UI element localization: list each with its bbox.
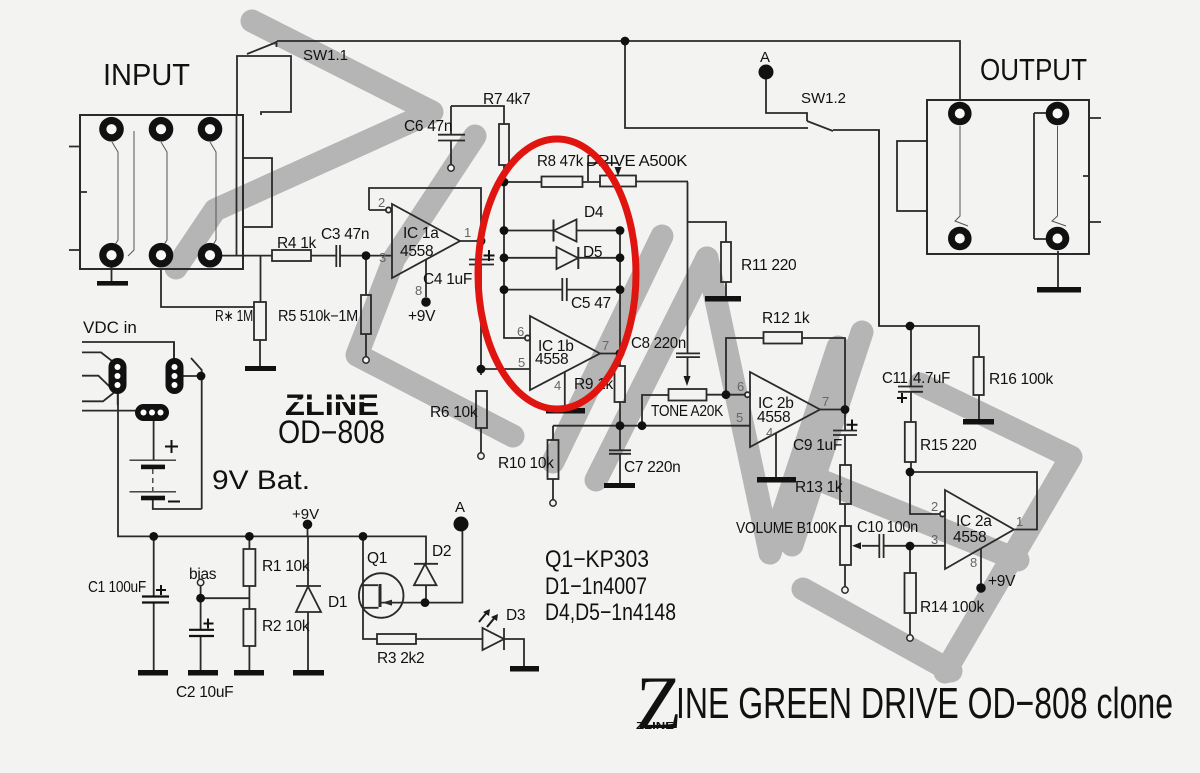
svg-text:R16 100k: R16 100k [989, 371, 1054, 388]
svg-text:R8 47k: R8 47k [537, 153, 584, 170]
svg-text:R13 1k: R13 1k [795, 479, 843, 496]
svg-text:INPUT: INPUT [103, 57, 190, 92]
svg-text:R12 1k: R12 1k [762, 310, 810, 327]
svg-text:OUTPUT: OUTPUT [980, 52, 1087, 87]
svg-text:2: 2 [378, 195, 385, 210]
svg-text:ZLINE: ZLINE [636, 721, 674, 732]
svg-text:R∗ 1M: R∗ 1M [215, 308, 253, 325]
svg-text:D1−1n4007: D1−1n4007 [545, 573, 647, 600]
svg-text:4: 4 [554, 378, 561, 393]
svg-text:6: 6 [737, 379, 744, 394]
svg-text:OD−808: OD−808 [278, 414, 385, 450]
svg-text:R4 1k: R4 1k [277, 235, 317, 252]
svg-text:4558: 4558 [757, 409, 790, 426]
svg-text:C3 47n: C3 47n [321, 226, 369, 243]
svg-text:9V Bat.: 9V Bat. [212, 465, 310, 495]
svg-text:+9V: +9V [408, 308, 436, 325]
svg-text:C9 1uF: C9 1uF [793, 437, 842, 454]
svg-text:8: 8 [415, 283, 422, 298]
svg-text:IC 2a: IC 2a [956, 513, 992, 530]
svg-text:R10 10k: R10 10k [498, 455, 554, 472]
svg-text:A: A [760, 49, 770, 66]
svg-text:7: 7 [602, 338, 609, 353]
svg-text:R3 2k2: R3 2k2 [377, 650, 424, 667]
svg-text:C1 100uF: C1 100uF [88, 579, 146, 596]
svg-text:D4,D5−1n4148: D4,D5−1n4148 [545, 599, 676, 626]
svg-text:C7 220n: C7 220n [624, 459, 681, 476]
svg-text:D2: D2 [432, 543, 451, 560]
svg-text:C4 1uF: C4 1uF [423, 271, 472, 288]
svg-text:7: 7 [822, 394, 829, 409]
svg-text:1: 1 [464, 225, 471, 240]
svg-text:SW1.2: SW1.2 [801, 90, 846, 107]
svg-text:3: 3 [379, 250, 386, 265]
svg-text:4558: 4558 [953, 529, 986, 546]
svg-text:D1: D1 [328, 594, 347, 611]
svg-text:5: 5 [736, 410, 743, 425]
svg-text:4558: 4558 [535, 351, 568, 368]
svg-text:R7 4k7: R7 4k7 [483, 91, 530, 108]
svg-text:Q1: Q1 [367, 550, 387, 567]
svg-text:4558: 4558 [400, 243, 433, 260]
svg-text:R15 220: R15 220 [920, 437, 977, 454]
svg-text:5: 5 [518, 355, 525, 370]
svg-text:+9V: +9V [292, 506, 319, 523]
svg-text:1: 1 [1016, 514, 1023, 529]
svg-text:R14 100k: R14 100k [920, 599, 985, 616]
svg-text:R1 10k: R1 10k [262, 558, 310, 575]
svg-text:C5 47: C5 47 [571, 295, 611, 312]
svg-text:R5 510k−1M: R5 510k−1M [278, 308, 358, 325]
svg-text:6: 6 [517, 324, 524, 339]
svg-text:D4: D4 [584, 204, 604, 221]
svg-text:Z: Z [636, 662, 682, 745]
svg-text:VOLUME B100K: VOLUME B100K [736, 520, 838, 537]
svg-text:2: 2 [931, 499, 938, 514]
svg-text:TONE A20K: TONE A20K [651, 403, 724, 420]
svg-text:8: 8 [970, 555, 977, 570]
svg-text:SW1.1: SW1.1 [303, 47, 348, 64]
svg-text:D5: D5 [583, 244, 602, 261]
svg-text:C8 220n: C8 220n [631, 335, 686, 352]
svg-text:4: 4 [766, 425, 773, 440]
svg-text:C6 47n: C6 47n [404, 118, 452, 135]
svg-text:A: A [455, 499, 465, 516]
svg-text:+9V: +9V [988, 573, 1016, 590]
svg-text:C2 10uF: C2 10uF [176, 684, 233, 701]
svg-text:D3: D3 [506, 607, 525, 624]
svg-text:Q1−KP303: Q1−KP303 [545, 546, 649, 573]
svg-text:R11 220: R11 220 [741, 257, 797, 274]
svg-text:3: 3 [931, 532, 938, 547]
svg-text:IC 1a: IC 1a [403, 225, 439, 242]
svg-text:C11 4.7uF: C11 4.7uF [882, 370, 950, 387]
svg-text:R6 10k: R6 10k [430, 404, 478, 421]
svg-text:INE GREEN DRIVE OD−808 clone: INE GREEN DRIVE OD−808 clone [676, 679, 1173, 728]
svg-text:bias: bias [189, 566, 217, 583]
svg-text:C10 100n: C10 100n [857, 519, 918, 536]
svg-text:R2 10k: R2 10k [262, 618, 310, 635]
svg-text:VDC in: VDC in [83, 318, 137, 337]
